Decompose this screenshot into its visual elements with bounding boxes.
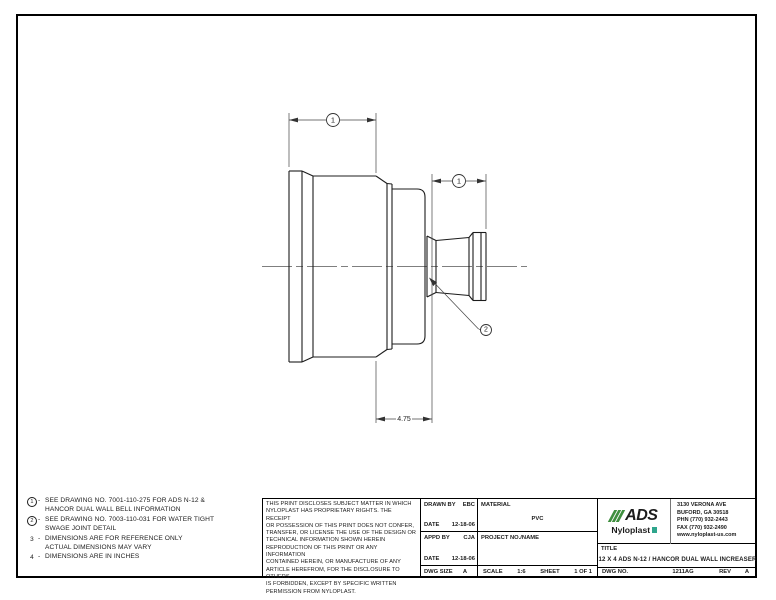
- disclaimer-line: ARTICLE HEREFROM, FOR THE DISCLOSURE TO …: [266, 567, 417, 582]
- drawing-title: 12 X 4 ADS N-12 / HANCOR DUAL WALL INCRE…: [598, 556, 757, 563]
- title-label: TITLE: [601, 546, 617, 552]
- rev-value: A: [745, 569, 749, 575]
- scale-sheet-cell: SCALE 1:6 SHEET 1 OF 1: [478, 566, 597, 578]
- project-cell: PROJECT NO./NAME: [478, 532, 597, 566]
- address-line: FAX (770) 932-2490: [677, 525, 757, 533]
- proprietary-notice: THIS PRINT DISCLOSES SUBJECT MATTER IN W…: [263, 499, 421, 578]
- approval-column: DRAWN BY EBC DATE 12-18-06 APPD BY CJA D…: [421, 499, 478, 578]
- appd-by-label: APPD BY: [424, 535, 450, 541]
- appd-date-label: DATE: [424, 556, 439, 562]
- note-3-sep: -: [38, 534, 40, 543]
- drawn-date-label: DATE: [424, 522, 439, 528]
- address-line: PHN (770) 932-2443: [677, 517, 757, 525]
- note-3: 3 - DIMENSIONS ARE FOR REFERENCE ONLY AC…: [27, 534, 259, 553]
- material-label: MATERIAL: [481, 502, 511, 508]
- disclaimer-line: THIS PRINT DISCLOSES SUBJECT MATTER IN W…: [266, 501, 417, 508]
- disclaimer-line: NYLOPLAST HAS PROPRIETARY RIGHTS. THE RE…: [266, 508, 417, 523]
- balloon-callouts: 1 1 2: [327, 114, 492, 336]
- note-1: 1 - SEE DRAWING NO. 7001-110-275 FOR ADS…: [27, 496, 259, 515]
- balloon-1-number: 1: [331, 116, 335, 125]
- dwg-no-value: 1211AG: [653, 569, 713, 575]
- company-address: 3130 VERONA AVE BUFORD, GA 30518 PHN (77…: [670, 499, 757, 544]
- appd-by-value: CJA: [463, 535, 475, 541]
- note-4-line1: DIMENSIONS ARE IN INCHES: [45, 552, 259, 561]
- note-4: 4 - DIMENSIONS ARE IN INCHES: [27, 552, 259, 561]
- rev-label: REV: [719, 569, 731, 575]
- dwg-no-cell: DWG NO. 1211AG REV A: [598, 568, 757, 578]
- note-2-line2: SWAGE JOINT DETAIL: [45, 524, 259, 533]
- ads-logo-text: ADS: [625, 507, 657, 525]
- appd-date-value: 12-18-06: [452, 556, 475, 562]
- scale-label: SCALE: [483, 569, 503, 575]
- note-2-balloon: 2: [27, 516, 37, 526]
- sheet-value: 1 OF 1: [574, 569, 592, 575]
- material-value: PVC: [478, 516, 597, 522]
- dwg-no-label: DWG NO.: [602, 569, 628, 575]
- balloon-1b-number: 1: [457, 177, 461, 186]
- title-cell: TITLE 12 X 4 ADS N-12 / HANCOR DUAL WALL…: [598, 544, 757, 568]
- company-cell: ADS Nyloplast 3130 VERONA AVE BUFORD, GA…: [598, 499, 757, 544]
- disclaimer-line: TRANSFER, OR LICENSE THE USE OF THE DESI…: [266, 530, 417, 537]
- note-4-sep: -: [38, 552, 40, 561]
- note-2-sep: -: [38, 515, 40, 524]
- disclaimer-line: PERMISSION FROM NYLOPLAST.: [266, 589, 417, 596]
- disclaimer-line: TECHNICAL INFORMATION SHOWN HEREIN: [266, 537, 417, 544]
- note-3-line2: ACTUAL DIMENSIONS MAY VARY: [45, 543, 259, 552]
- note-1-balloon: 1: [27, 497, 37, 507]
- disclaimer-line: REPRODUCTION OF THIS PRINT OR ANY INFORM…: [266, 545, 417, 560]
- note-1-line2: HANCOR DUAL WALL BELL INFORMATION: [45, 505, 259, 514]
- title-block: THIS PRINT DISCLOSES SUBJECT MATTER IN W…: [262, 498, 757, 578]
- address-line: BUFORD, GA 30518: [677, 510, 757, 518]
- drawing-sheet: 1 1 2 4.75 1 - SEE DRAWING NO. 7001-110-…: [0, 0, 776, 600]
- address-line: 3130 VERONA AVE: [677, 502, 757, 510]
- notes-list: 1 - SEE DRAWING NO. 7001-110-275 FOR ADS…: [27, 496, 259, 562]
- material-column: MATERIAL PVC PROJECT NO./NAME SCALE 1:6 …: [478, 499, 598, 578]
- note-3-number: 3: [27, 535, 37, 545]
- disclaimer-line: OR POSSESSION OF THIS PRINT DOES NOT CON…: [266, 523, 417, 530]
- dwg-size-value: A: [463, 569, 467, 575]
- drawn-date-value: 12-18-06: [452, 522, 475, 528]
- note-2: 2 - SEE DRAWING NO. 7003-110-031 FOR WAT…: [27, 515, 259, 534]
- appd-by-cell: APPD BY CJA DATE 12-18-06: [421, 532, 477, 566]
- drawn-by-value: EBC: [463, 502, 475, 508]
- sheet-label: SHEET: [540, 569, 559, 575]
- note-1-line1: SEE DRAWING NO. 7001-110-275 FOR ADS N-1…: [45, 496, 259, 505]
- dwg-size-cell: DWG SIZE A: [421, 566, 477, 578]
- disclaimer-line: CONTAINED HEREIN, OR MANUFACTURE OF ANY: [266, 559, 417, 566]
- disclaimer-line: IS FORBIDDEN, EXCEPT BY SPECIFIC WRITTEN: [266, 581, 417, 588]
- note-1-sep: -: [38, 496, 40, 505]
- project-label: PROJECT NO./NAME: [481, 535, 539, 541]
- ads-nyloplast-logo: ADS Nyloplast: [598, 499, 670, 544]
- dwg-size-label: DWG SIZE: [424, 569, 453, 575]
- company-website: www.nyloplast-us.com: [677, 532, 757, 540]
- note-3-line1: DIMENSIONS ARE FOR REFERENCE ONLY: [45, 534, 259, 543]
- company-title-column: ADS Nyloplast 3130 VERONA AVE BUFORD, GA…: [598, 499, 757, 578]
- nyloplast-logo-mark-icon: [652, 527, 657, 533]
- balloon-2-number: 2: [484, 327, 488, 334]
- drawn-by-label: DRAWN BY: [424, 502, 456, 508]
- material-cell: MATERIAL PVC: [478, 499, 597, 532]
- dimension-475-value: 4.75: [397, 416, 411, 423]
- drawn-by-cell: DRAWN BY EBC DATE 12-18-06: [421, 499, 477, 532]
- note-2-line1: SEE DRAWING NO. 7003-110-031 FOR WATER T…: [45, 515, 259, 524]
- scale-value: 1:6: [517, 569, 525, 575]
- nyloplast-logo-text: Nyloplast: [611, 525, 650, 535]
